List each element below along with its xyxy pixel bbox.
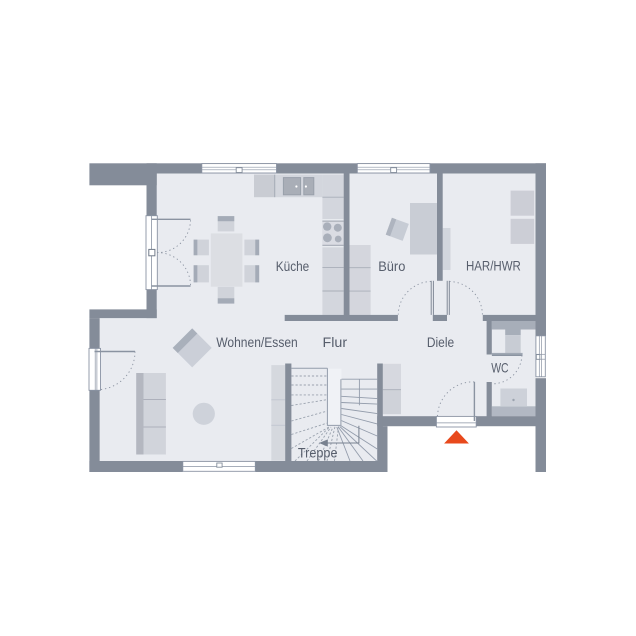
svg-text:Küche: Küche [276,259,310,274]
svg-text:Büro: Büro [378,259,405,274]
svg-text:Diele: Diele [427,335,455,350]
svg-text:Flur: Flur [323,335,348,350]
svg-text:Treppe: Treppe [298,446,338,461]
svg-text:WC: WC [491,361,508,376]
svg-text:HAR/HWR: HAR/HWR [466,259,521,274]
svg-text:Wohnen/Essen: Wohnen/Essen [216,335,298,350]
